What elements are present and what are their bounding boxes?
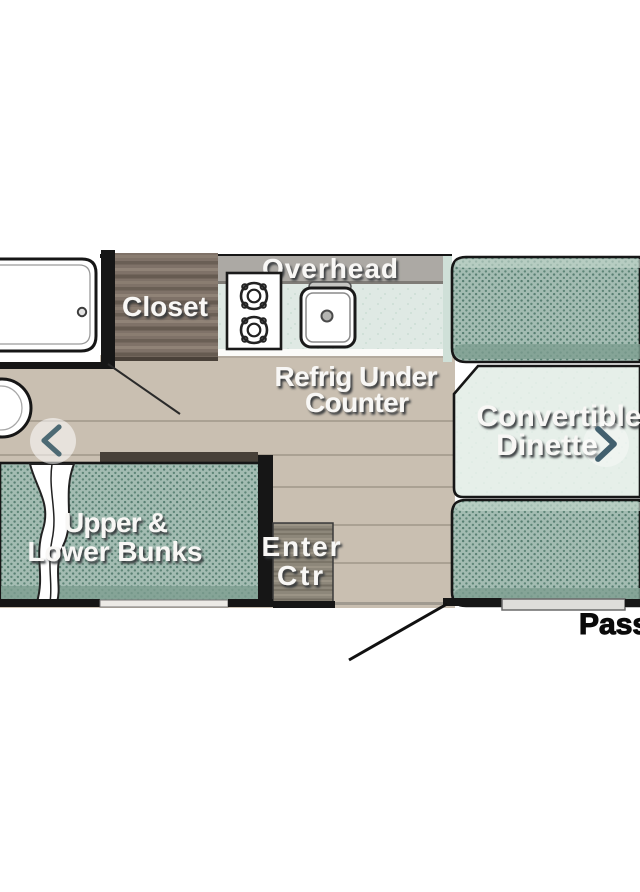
svg-text:Closet: Closet bbox=[122, 291, 208, 322]
svg-text:Overhead: Overhead bbox=[262, 253, 398, 284]
svg-text:Upper &: Upper & bbox=[64, 507, 168, 538]
svg-text:Ctr: Ctr bbox=[277, 560, 323, 591]
svg-text:Lower Bunks: Lower Bunks bbox=[28, 536, 203, 567]
svg-text:Enter: Enter bbox=[262, 531, 341, 562]
svg-text:Dinette: Dinette bbox=[496, 429, 598, 462]
svg-text:Passe: Passe bbox=[579, 608, 640, 641]
svg-text:Counter: Counter bbox=[305, 387, 409, 418]
